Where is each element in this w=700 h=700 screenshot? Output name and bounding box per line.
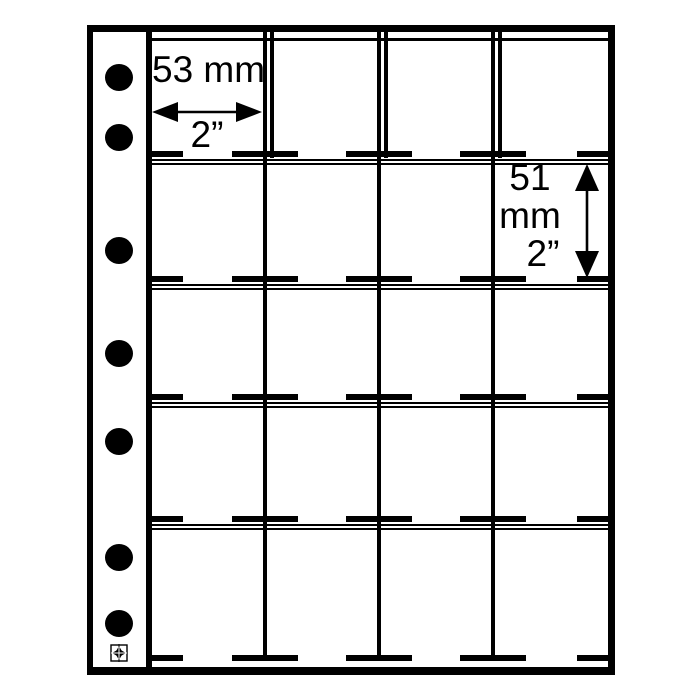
- pocket-height-in: 2”: [493, 235, 567, 273]
- pocket-height-label: 51 mm 2”: [493, 159, 567, 273]
- pocket-width-label-mm: 53 mm: [150, 51, 266, 88]
- binder-hole-icon: [105, 340, 133, 367]
- pocket-slit: [495, 516, 526, 522]
- pocket-slit: [460, 516, 491, 522]
- row-weld-line: [152, 284, 608, 286]
- column-separator-top-row: [270, 32, 274, 158]
- pocket-slit: [267, 276, 298, 282]
- pocket-height-value: 51: [493, 159, 567, 197]
- column-separator-top-row: [384, 32, 388, 158]
- pocket-slit: [495, 394, 526, 400]
- pocket-slit: [232, 655, 263, 661]
- pocket-slit: [267, 151, 298, 157]
- pocket-slit: [267, 655, 298, 661]
- pocket-slit: [381, 151, 412, 157]
- binder-hole-icon: [105, 610, 133, 637]
- pocket-slit: [232, 516, 263, 522]
- pocket-slit: [495, 655, 526, 661]
- column-separator-top-row: [498, 32, 502, 158]
- pocket-slit: [460, 276, 491, 282]
- binder-hole-icon: [105, 124, 133, 151]
- height-arrow-icon: [571, 162, 604, 280]
- pocket-slit: [267, 394, 298, 400]
- pocket-slit: [495, 276, 526, 282]
- page-border-top: [87, 25, 615, 32]
- pocket-slit: [460, 394, 491, 400]
- pocket-slit: [152, 276, 183, 282]
- coin-sheet-diagram: 53 mm 2” 51 mm 2”: [0, 0, 700, 700]
- pocket-slit: [381, 655, 412, 661]
- column-separator: [491, 32, 495, 661]
- pocket-slit: [381, 394, 412, 400]
- pocket-slit: [346, 516, 377, 522]
- pocket-slit: [577, 655, 608, 661]
- binder-hole-icon: [105, 544, 133, 571]
- pocket-slit: [346, 276, 377, 282]
- pocket-slit: [381, 276, 412, 282]
- pocket-slit: [577, 151, 608, 157]
- pocket-width-label-in: 2”: [150, 116, 264, 153]
- pocket-slit: [346, 151, 377, 157]
- row-weld-line: [152, 528, 608, 530]
- column-separator: [377, 32, 381, 661]
- pocket-slit: [152, 655, 183, 661]
- pocket-slit: [232, 394, 263, 400]
- pocket-height-unit: mm: [493, 197, 567, 235]
- binder-hole-icon: [105, 428, 133, 455]
- row-weld-line: [152, 524, 608, 526]
- pocket-slit: [460, 655, 491, 661]
- pocket-slit: [232, 276, 263, 282]
- pocket-slit: [381, 516, 412, 522]
- pocket-slit: [460, 151, 491, 157]
- binder-hole-icon: [105, 237, 133, 264]
- pocket-slit: [267, 516, 298, 522]
- pocket-slit: [577, 516, 608, 522]
- row-weld-line: [152, 406, 608, 408]
- row-weld-line: [152, 288, 608, 290]
- pocket-slit: [346, 655, 377, 661]
- page-border-bottom: [87, 667, 615, 675]
- pocket-slit: [577, 394, 608, 400]
- row-weld-line: [152, 402, 608, 404]
- pocket-slit: [152, 516, 183, 522]
- page-border-right: [608, 25, 615, 675]
- pocket-slit: [346, 394, 377, 400]
- pocket-slit: [152, 394, 183, 400]
- page-border-left: [87, 25, 93, 675]
- binder-hole-icon: [105, 64, 133, 91]
- registration-mark-icon: [110, 644, 128, 662]
